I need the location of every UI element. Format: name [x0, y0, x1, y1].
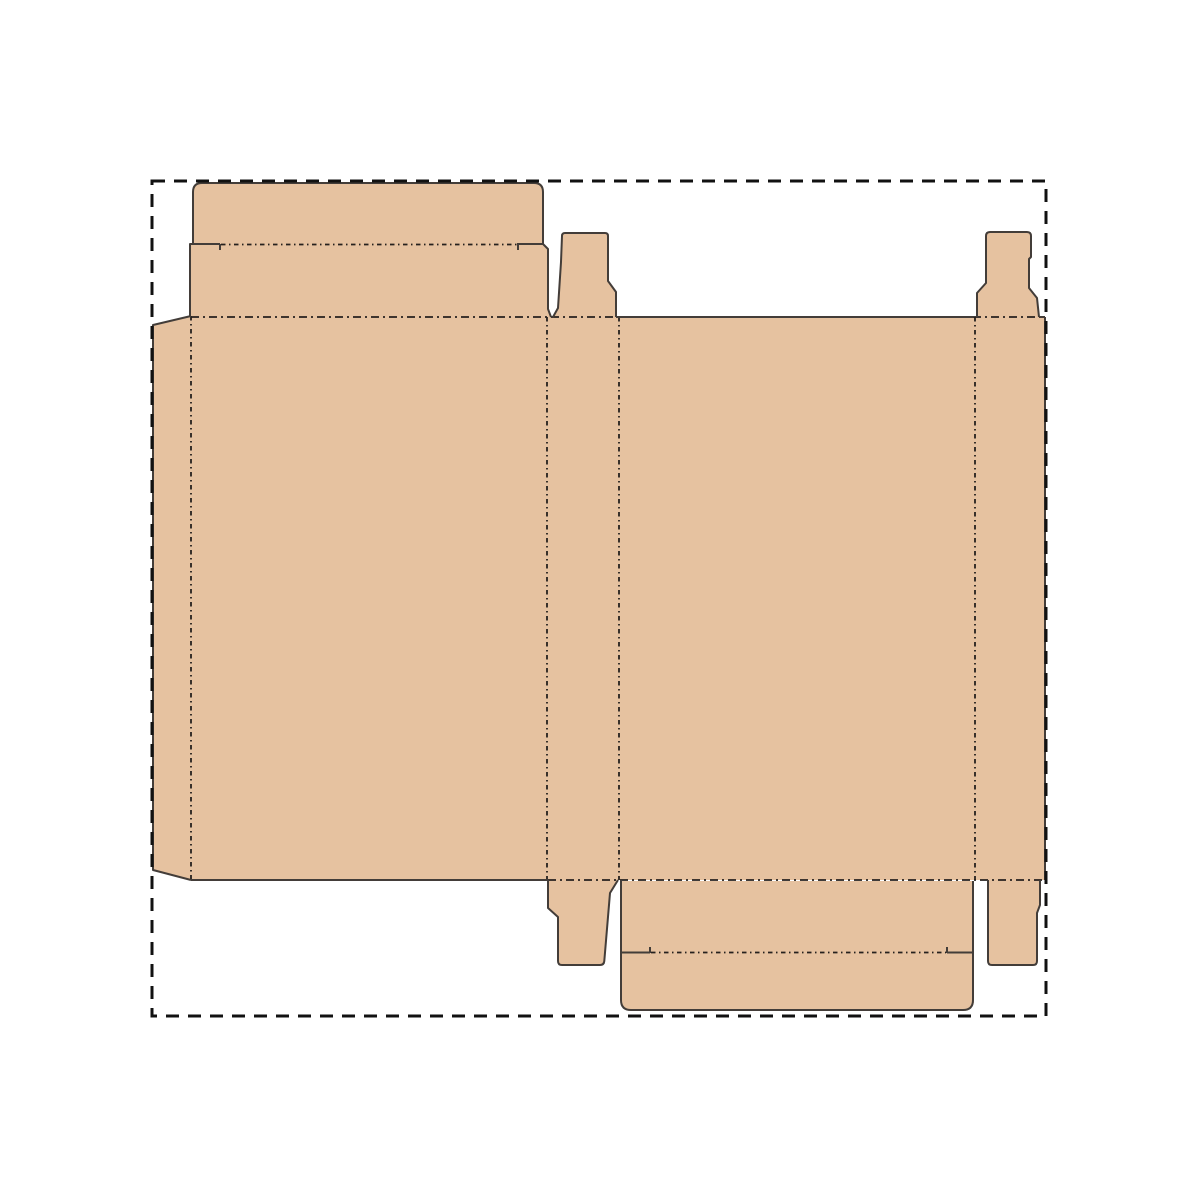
box-dieline-diagram [0, 0, 1200, 1200]
glue-flap [153, 316, 191, 880]
top-tuck-flap [193, 183, 543, 244]
dieline-canvas [0, 0, 1200, 1200]
bottom-side-tab-right [988, 880, 1040, 965]
board-shapes [153, 183, 1045, 1010]
main-panels [191, 317, 1045, 880]
top-dust-flap [190, 244, 551, 317]
bottom-dust-flap [621, 881, 974, 952]
bottom-tuck-flap [622, 952, 974, 1010]
